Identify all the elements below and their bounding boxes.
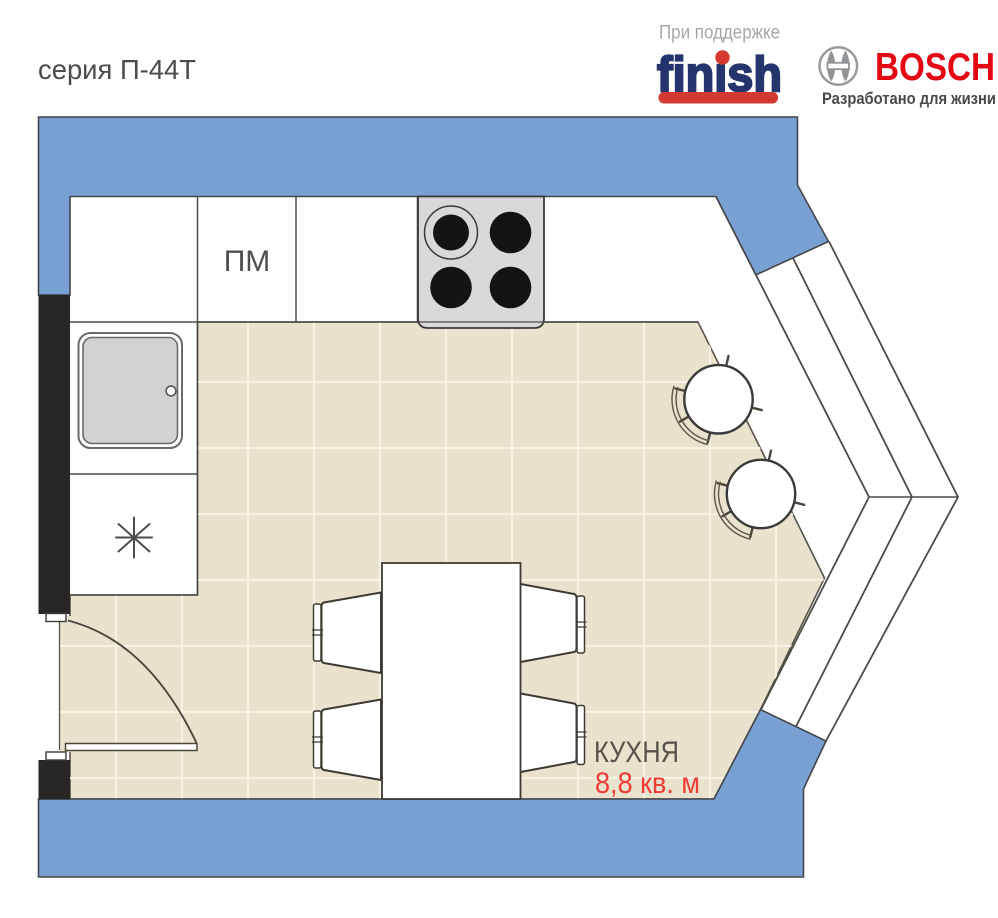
svg-text:BOSCH: BOSCH <box>875 46 995 89</box>
svg-text:8,8 кв. м: 8,8 кв. м <box>595 767 700 800</box>
svg-text:КУХНЯ: КУХНЯ <box>594 736 679 769</box>
svg-text:ПМ: ПМ <box>224 245 271 278</box>
svg-text:При поддержке: При поддержке <box>659 22 780 44</box>
svg-text:Разработано для жизни: Разработано для жизни <box>822 90 996 108</box>
svg-text:серия П-44Т: серия П-44Т <box>38 54 196 85</box>
